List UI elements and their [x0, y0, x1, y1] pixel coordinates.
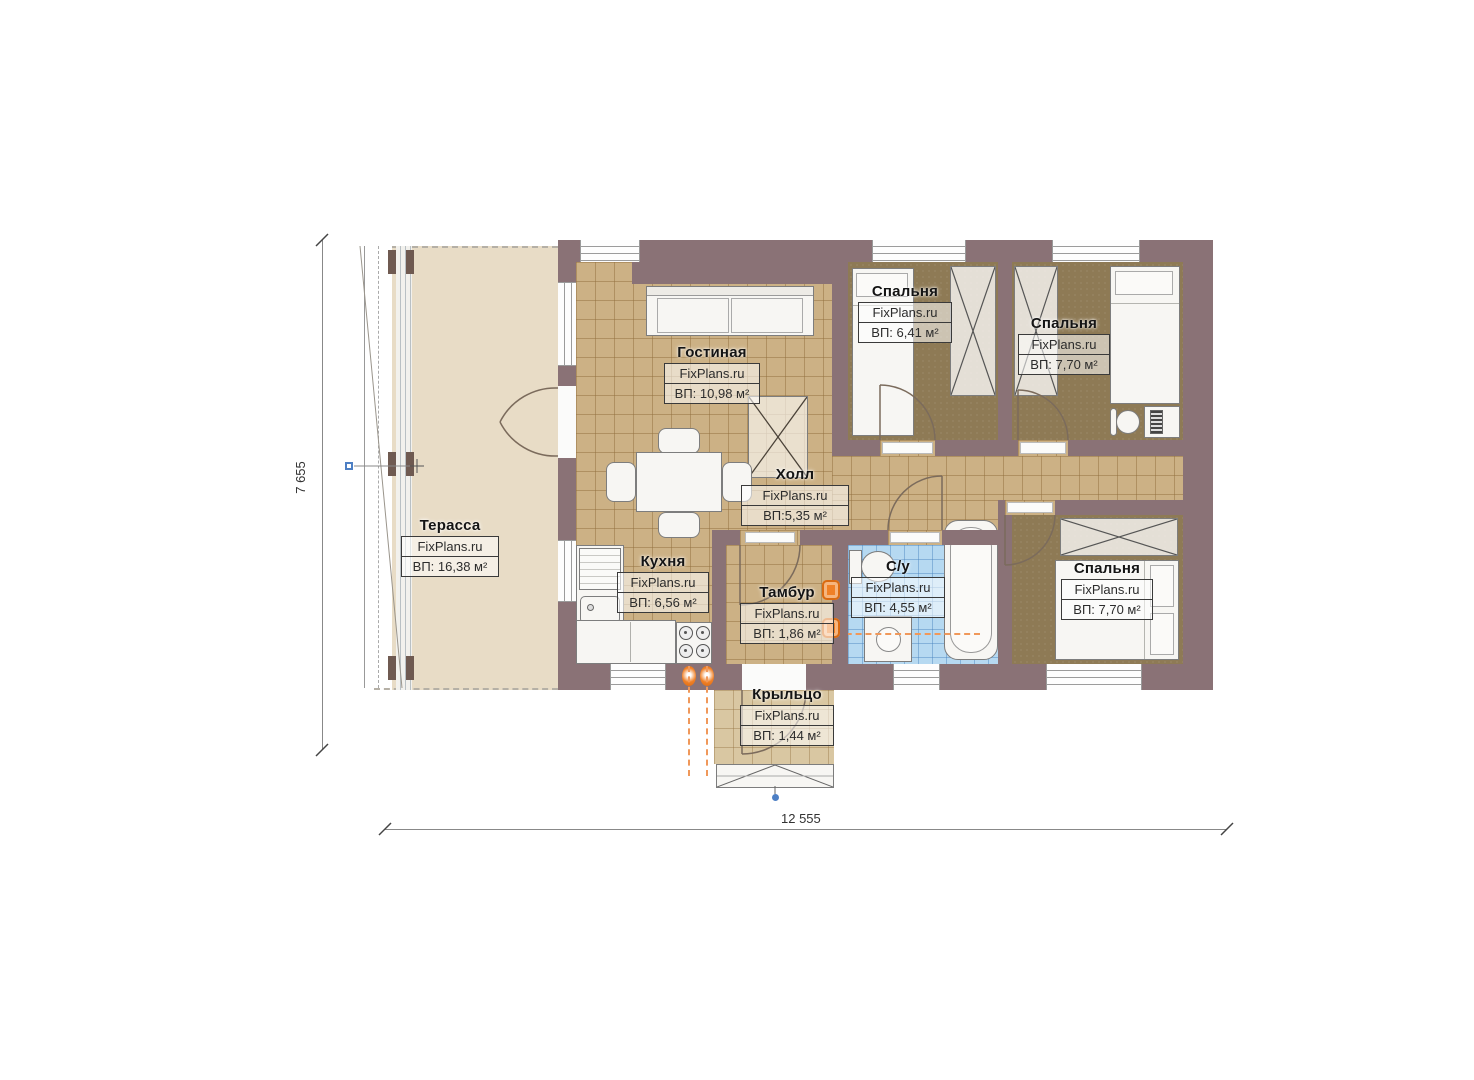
pipe-dashed-line [826, 633, 980, 635]
dimension-line-horizontal [385, 829, 1227, 830]
chair-icon [1116, 410, 1140, 434]
terrace-post [406, 656, 414, 680]
room-info-box: FixPlans.ru ВП: 1,86 м² [740, 603, 834, 644]
watermark-text: FixPlans.ru [1019, 335, 1109, 355]
room-name: Кухня [608, 553, 718, 570]
room-label-porch: Крыльцо FixPlans.ru ВП: 1,44 м² [730, 686, 844, 746]
stove-burner-icon [679, 626, 693, 640]
room-name: Спальня [1008, 315, 1120, 332]
terrace-post [406, 250, 414, 274]
stove-burner-icon [679, 644, 693, 658]
room-label-tambour: Тамбур FixPlans.ru ВП: 1,86 м² [730, 584, 844, 644]
window-living-left [558, 282, 576, 366]
room-info-box: FixPlans.ru ВП: 6,56 м² [617, 572, 709, 613]
room-label-living: Гостиная FixPlans.ru ВП: 10,98 м² [652, 344, 772, 404]
porch-marker-icon [772, 794, 779, 801]
chair-back [1110, 408, 1117, 436]
door-threshold [1020, 442, 1066, 454]
room-label-bedroom1: Спальня FixPlans.ru ВП: 6,41 м² [847, 283, 963, 343]
terrace-boundary-dashed [378, 246, 379, 688]
dimension-height-label: 7 655 [293, 461, 308, 494]
terrace-edge-dashed-top [392, 246, 558, 248]
dimension-width-label: 12 555 [781, 811, 821, 826]
window-kitchen-bottom [610, 664, 666, 690]
room-info-box: FixPlans.ru ВП: 1,44 м² [740, 705, 834, 746]
room-label-terrace: Терасса FixPlans.ru ВП: 16,38 м² [390, 517, 510, 577]
bed-icon [1110, 266, 1180, 404]
dining-chair-icon [658, 428, 700, 454]
room-info-box: FixPlans.ru ВП:5,35 м² [741, 485, 849, 526]
computer-icon [1150, 410, 1163, 434]
door-threshold [890, 532, 940, 543]
door-threshold [745, 532, 795, 543]
watermark-text: FixPlans.ru [665, 364, 759, 384]
window-bedroom1-top [872, 240, 966, 262]
room-name: С/у [842, 558, 954, 575]
stove-burner-icon [696, 626, 710, 640]
watermark-text: FixPlans.ru [852, 578, 944, 598]
dining-chair-icon [606, 462, 636, 502]
hall-corridor-floor [832, 456, 1183, 500]
level-marker-icon [345, 462, 353, 470]
counter-divider [630, 622, 631, 662]
stove-burner-icon [696, 644, 710, 658]
room-label-bedroom3: Спальня FixPlans.ru ВП: 7,70 м² [1051, 560, 1163, 620]
room-area: ВП: 1,86 м² [741, 624, 833, 643]
room-name: Спальня [1051, 560, 1163, 577]
watermark-text: FixPlans.ru [741, 604, 833, 624]
room-area: ВП: 6,56 м² [618, 593, 708, 612]
terrace-post [406, 452, 414, 476]
room-name: Терасса [390, 517, 510, 534]
room-label-bathroom: С/у FixPlans.ru ВП: 4,55 м² [842, 558, 954, 618]
terrace-post [388, 452, 396, 476]
window-bedroom2-top [1052, 240, 1140, 262]
dimension-line-vertical [322, 240, 323, 750]
sofa-cushion [731, 298, 803, 333]
kitchen-counter-bottom [576, 620, 676, 664]
room-area: ВП: 10,98 м² [665, 384, 759, 403]
room-label-kitchen: Кухня FixPlans.ru ВП: 6,56 м² [608, 553, 718, 613]
window-kitchen-left [558, 540, 576, 602]
room-label-bedroom2: Спальня FixPlans.ru ВП: 7,70 м² [1008, 315, 1120, 375]
room-area: ВП: 1,44 м² [741, 726, 833, 745]
door-threshold [882, 442, 933, 454]
gas-dashed-line [706, 666, 708, 776]
watermark-text: FixPlans.ru [741, 706, 833, 726]
porch-steps-icon [716, 764, 834, 788]
room-area: ВП: 7,70 м² [1062, 600, 1152, 619]
wall-bath-tambour-top [942, 530, 998, 545]
room-info-box: FixPlans.ru ВП: 10,98 м² [664, 363, 760, 404]
window-living-top [580, 240, 640, 262]
wardrobe-icon [1060, 518, 1178, 556]
room-name: Тамбур [730, 584, 844, 601]
room-name: Спальня [847, 283, 963, 300]
room-area: ВП: 6,41 м² [859, 323, 951, 342]
terrace-boundary-line [364, 246, 365, 688]
window-bathroom-bottom [893, 664, 940, 690]
watermark-text: FixPlans.ru [859, 303, 951, 323]
dining-table-icon [636, 452, 722, 512]
watermark-text: FixPlans.ru [618, 573, 708, 593]
washer-drum [876, 627, 901, 652]
room-name: Гостиная [652, 344, 772, 361]
wall-bedrooms-bottom [1068, 440, 1183, 456]
watermark-text: FixPlans.ru [1062, 580, 1152, 600]
sofa-icon [646, 286, 814, 336]
wall-top-living-thick [632, 262, 832, 284]
floor-plan: 7 655 12 555 Терасса FixPlans.ru ВП: 16,… [0, 0, 1474, 1080]
terrace-floor [392, 246, 558, 690]
wall-bedrooms-bottom [832, 440, 880, 456]
wall-right [1183, 240, 1213, 690]
pillow [1115, 271, 1173, 295]
wall-bedroom3-left [998, 500, 1012, 664]
room-area: ВП: 4,55 м² [852, 598, 944, 617]
room-info-box: FixPlans.ru ВП: 6,41 м² [858, 302, 952, 343]
room-info-box: FixPlans.ru ВП: 7,70 м² [1061, 579, 1153, 620]
room-info-box: FixPlans.ru ВП: 4,55 м² [851, 577, 945, 618]
room-area: ВП:5,35 м² [742, 506, 848, 525]
wall-bedrooms-bottom [935, 440, 1018, 456]
wall-living-bedroom1 [832, 262, 848, 440]
terrace-post [388, 656, 396, 680]
terrace-door-opening [558, 386, 576, 458]
sofa-cushion [657, 298, 729, 333]
watermark-text: FixPlans.ru [742, 486, 848, 506]
gas-dashed-line [688, 666, 690, 776]
blanket-line [1111, 303, 1179, 304]
room-area: ВП: 7,70 м² [1019, 355, 1109, 374]
washing-machine-icon [864, 616, 912, 662]
room-info-box: FixPlans.ru ВП: 16,38 м² [401, 536, 499, 577]
watermark-text: FixPlans.ru [402, 537, 498, 557]
sofa-back [647, 287, 813, 296]
window-bedroom3-bottom [1046, 664, 1142, 690]
room-area: ВП: 16,38 м² [402, 557, 498, 576]
wall-bedroom3-top [1055, 500, 1183, 515]
door-threshold [1007, 502, 1053, 513]
terrace-post [388, 250, 396, 274]
dining-chair-icon [658, 512, 700, 538]
room-info-box: FixPlans.ru ВП: 7,70 м² [1018, 334, 1110, 375]
room-name: Крыльцо [730, 686, 844, 703]
room-name: Холл [733, 466, 857, 483]
sink-faucet-dot [587, 604, 594, 611]
room-label-hall: Холл FixPlans.ru ВП:5,35 м² [733, 466, 857, 526]
